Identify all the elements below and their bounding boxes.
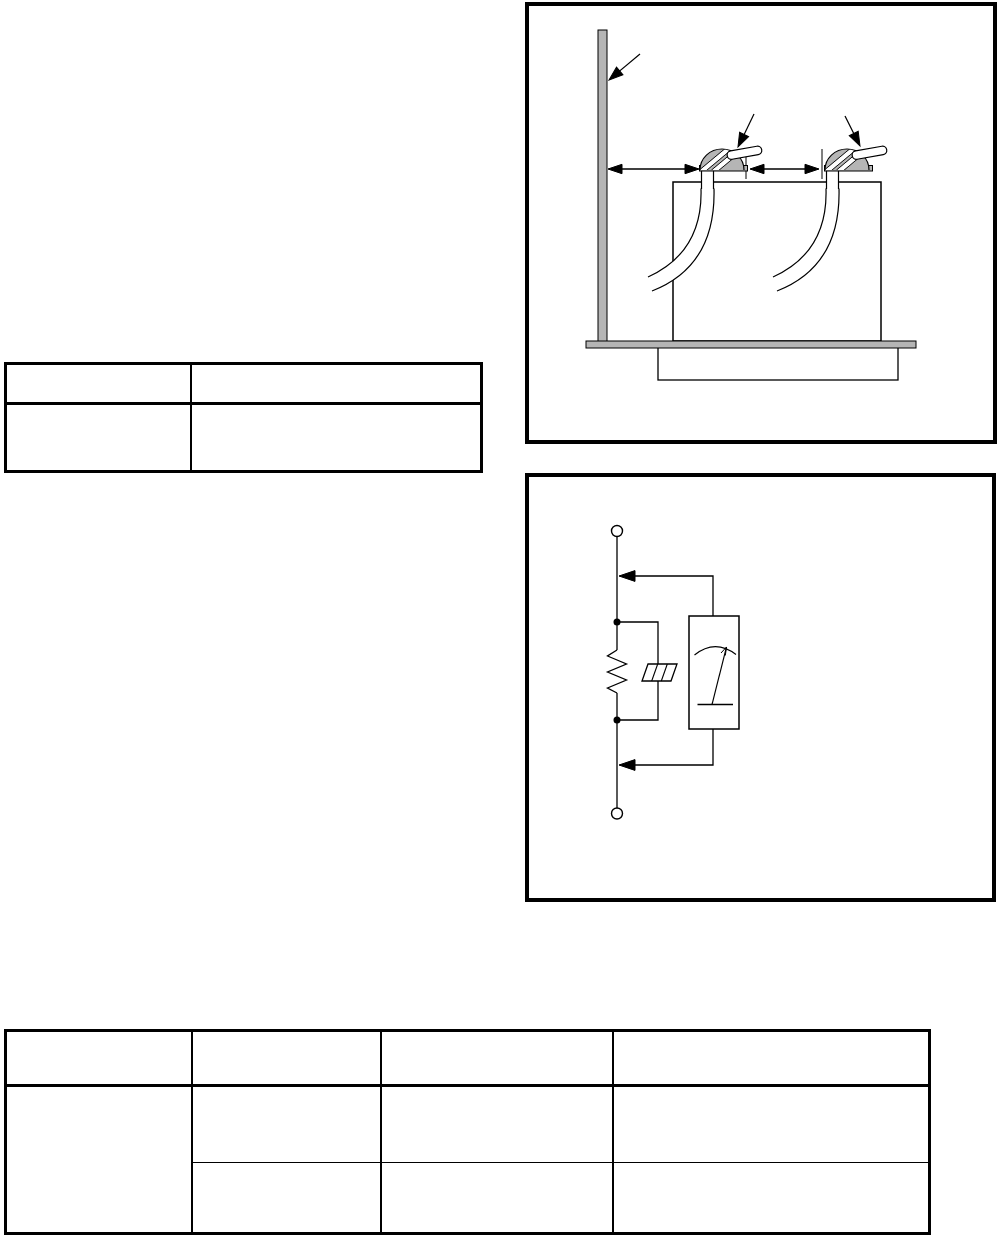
- lower-table-cell: [614, 1163, 928, 1232]
- lower-table-cell: [382, 1163, 614, 1232]
- upper-table-cell: [7, 365, 192, 405]
- lower-table-merged-cell: [7, 1087, 193, 1232]
- right-nozzle-neck: [826, 169, 839, 189]
- meter: [689, 616, 739, 729]
- lower-table-cell: [193, 1087, 382, 1163]
- junction-dot-top: [614, 619, 621, 626]
- lower-table-header-cell: [193, 1032, 382, 1087]
- wall: [598, 30, 607, 342]
- base-plate: [586, 341, 916, 348]
- lower-table-header-cell: [382, 1032, 614, 1087]
- pedestal: [658, 347, 898, 380]
- upper-table-cell: [192, 405, 480, 470]
- lower-table-header-cell: [7, 1032, 193, 1087]
- left-nozzle-neck: [701, 169, 714, 189]
- top-terminal: [612, 526, 623, 537]
- document-page: [0, 0, 999, 1239]
- lower-table-cell: [382, 1087, 614, 1163]
- lower-table-cell: [614, 1087, 928, 1163]
- installation-diagram: [523, 0, 999, 448]
- lower-table-cell: [193, 1163, 382, 1232]
- lower-table: [4, 1029, 931, 1235]
- lower-table-header-cell: [614, 1032, 928, 1087]
- circuit-frame: [527, 475, 994, 900]
- upper-table-cell: [7, 405, 192, 470]
- bottom-terminal: [612, 808, 623, 819]
- upper-table-cell: [192, 365, 480, 405]
- circuit-diagram: [523, 471, 999, 906]
- junction-dot-bottom: [614, 717, 621, 724]
- meter-body: [689, 616, 739, 729]
- upper-table: [4, 362, 483, 473]
- protector-element: [642, 664, 677, 681]
